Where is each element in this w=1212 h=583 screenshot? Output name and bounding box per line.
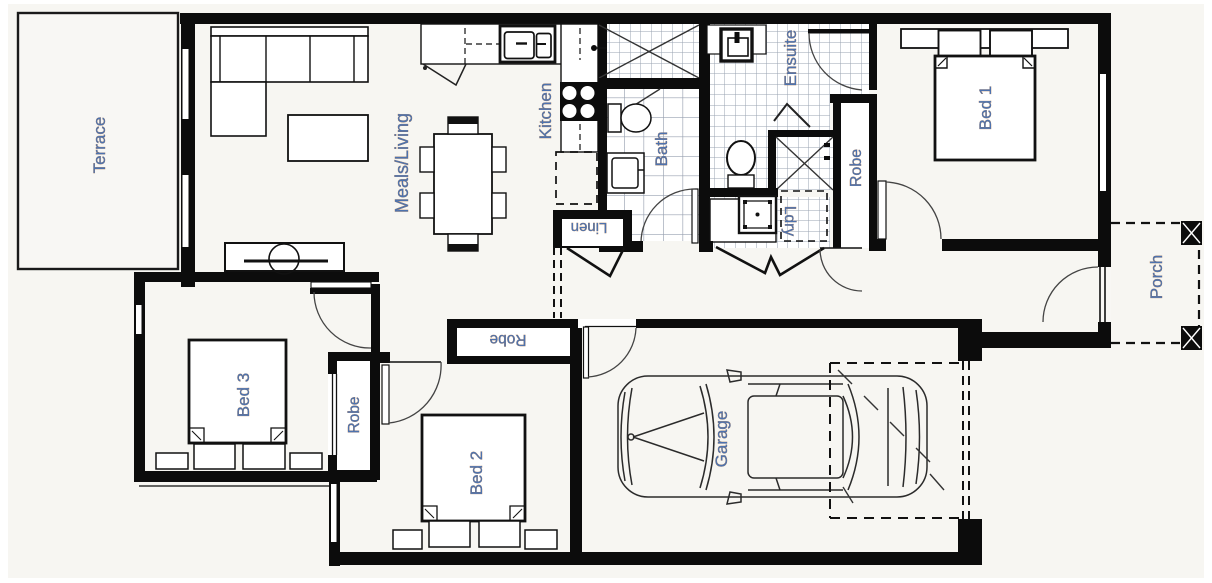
svg-text:Garage: Garage [712,411,731,468]
svg-text:Robe: Robe [848,149,865,187]
svg-text:Ensuite: Ensuite [781,30,800,87]
svg-text:Porch: Porch [1147,255,1166,299]
svg-text:Robe: Robe [489,331,526,348]
svg-text:Bath: Bath [652,132,671,167]
svg-text:Meals/Living: Meals/Living [392,113,412,213]
svg-text:Robe: Robe [346,396,363,433]
svg-text:Ldry: Ldry [781,206,798,236]
svg-text:Terrace: Terrace [90,117,109,174]
svg-text:Bed 1: Bed 1 [976,86,995,130]
svg-text:Bed 2: Bed 2 [467,451,486,495]
svg-text:Kitchen: Kitchen [536,83,555,140]
svg-text:Linen: Linen [571,219,608,236]
svg-text:Bed 3: Bed 3 [234,373,253,417]
